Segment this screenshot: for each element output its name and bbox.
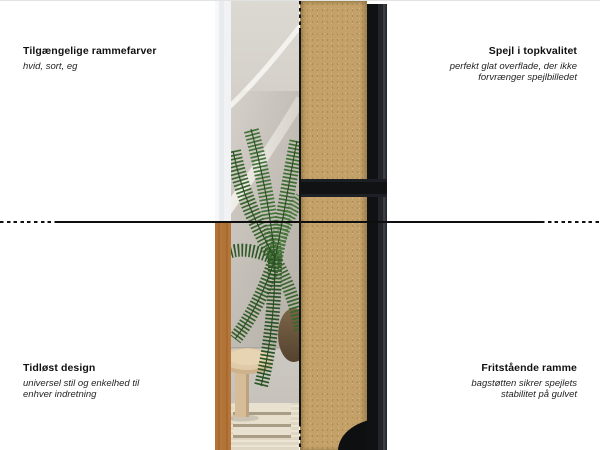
vertical-divider-dotted-top <box>299 1 301 29</box>
annotation-subtitle: bagstøtten sikrer spejlets stabilitet på… <box>471 378 577 400</box>
annotation-mirror-quality: Spejl i topkvalitet perfekt glat overfla… <box>450 45 577 83</box>
annotation-timeless-design: Tidløst design universel stil og enkelhe… <box>23 362 139 400</box>
horizontal-guide-dotted-left <box>0 221 57 223</box>
back-support-crossbar <box>300 179 387 197</box>
annotation-subtitle: perfekt glat overflade, der ikke forvræn… <box>450 61 577 83</box>
annotation-subtitle: hvid, sort, eg <box>23 61 157 72</box>
mdf-back-panel <box>300 1 367 450</box>
annotation-title: Fritstående ramme <box>471 362 577 375</box>
vertical-divider-dotted-bottom <box>299 423 301 450</box>
annotation-freestanding-frame: Fritstående ramme bagstøtten sikrer spej… <box>471 362 577 400</box>
annotation-frame-colors: Tilgængelige rammefarver hvid, sort, eg <box>23 45 157 72</box>
annotation-title: Tilgængelige rammefarver <box>23 45 157 58</box>
vertical-divider-line <box>299 29 301 423</box>
mirror-reflection-scene <box>231 1 299 450</box>
annotation-title: Tidløst design <box>23 362 139 375</box>
horizontal-guide-dotted-right <box>541 221 600 223</box>
annotation-subtitle: universel stil og enkelhed til enhver in… <box>23 378 139 400</box>
mirror-frame-oak-strip <box>215 222 231 450</box>
annotation-title: Spejl i topkvalitet <box>450 45 577 58</box>
black-frame-bar <box>367 4 387 450</box>
mirror-frame-white-strip <box>215 1 231 222</box>
infographic-canvas: Tilgængelige rammefarver hvid, sort, eg … <box>0 0 600 450</box>
